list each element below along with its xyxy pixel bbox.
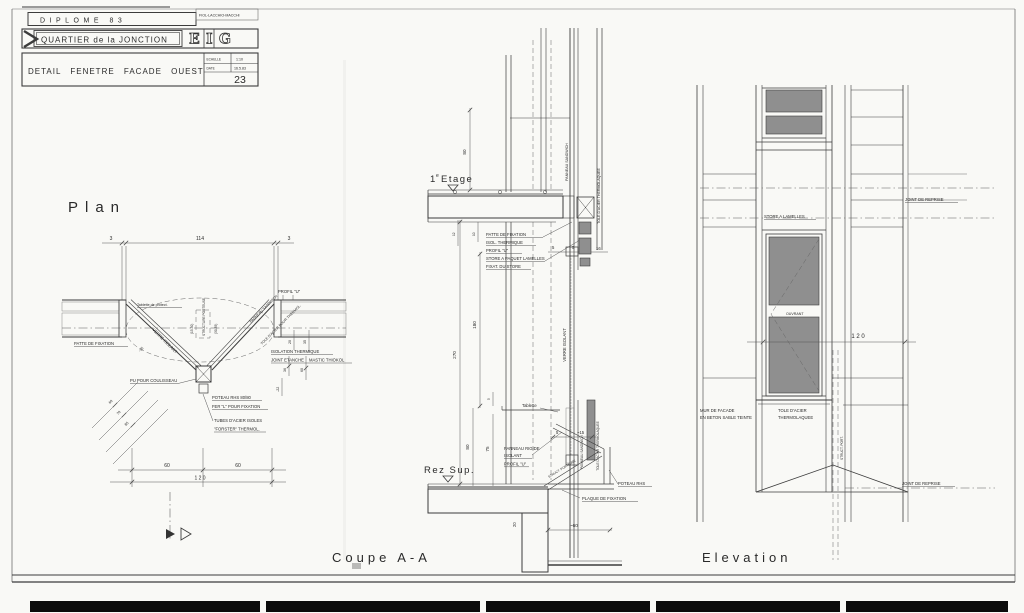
elevation-mur-label-1: MUR DE FACADE: [700, 408, 735, 413]
plan-dim-22: -22: [276, 387, 280, 392]
section-letter-icon: [181, 528, 191, 540]
drawing-sheet: DIPLOME 83 FIOL-LACCHIO-MACCHI QUARTIER …: [0, 0, 1024, 613]
coupe-structure-lines: [506, 28, 602, 558]
plan-poteau-label: POTEAU RHS 80/80: [212, 395, 252, 400]
logo-letter-g: G: [219, 32, 231, 48]
scan-fold-mark: [343, 60, 346, 560]
coupe-tablette-label: Tablette: [522, 403, 537, 408]
coupe-panneau-sandwich-top-label: PANNEAU SANDWICH: [565, 143, 569, 181]
plan-title: Plan: [68, 199, 126, 216]
plan-drawing: Plan 3 114 3: [62, 199, 352, 540]
elevation-title: Elevation: [702, 550, 791, 565]
date-label: DATE: [207, 67, 215, 71]
level1-name: Etage: [441, 174, 473, 185]
scan-speck: [352, 563, 361, 569]
date-value: 16.5.83: [234, 67, 246, 71]
plan-profil-u-label: PROFIL "U": [278, 289, 301, 294]
coupe-tole-top-label: TOLE D'ACIER THERMOLAQUEE: [597, 168, 601, 224]
elevation-ouvrant-label: OUVRANT: [786, 312, 804, 316]
plan-fer-l-label: FER "L" POUR FIXATION: [212, 404, 260, 409]
coupe-store-cassette: [577, 197, 594, 266]
coupe-dim-75: 75: [485, 446, 490, 452]
coupe-dim-5c: 5: [487, 398, 491, 400]
coupe-isol-label: ISOL. THERMIQUE: [486, 240, 523, 245]
elevation-top-window: [756, 88, 832, 150]
sheet-border: [12, 7, 1015, 582]
plan-bottom-dims: 60 60 1 2 0: [110, 448, 286, 487]
level-marker-etage1: 1 e Etage: [430, 173, 473, 191]
coupe-store-paquet-label: STORE A PAQUET LAMELLES: [486, 256, 545, 261]
scale-label: ECHELLE: [207, 58, 222, 62]
coupe-poteau-label: POTEAU RHS: [618, 481, 645, 486]
plan-dim-35neg: -35: [138, 346, 145, 353]
elevation-wall-lines: [697, 85, 967, 522]
plan-dim-struct-a: (15-30): [190, 324, 194, 334]
elevation-joint-reprise-bottom-label: JOINT DE REPRISE: [902, 481, 941, 486]
coupe-dim-12: 12: [452, 232, 456, 236]
coupe-fixat-store-label: FIXAT. DU STORE: [486, 264, 521, 269]
coupe-verre-isolant-label: VERRE ISOLANT: [562, 328, 567, 362]
plan-diag-85: 85: [124, 421, 130, 427]
coupe-slab-rez: Rez Sup. 20 ~60: [424, 465, 622, 572]
elevation-joint-lines: [700, 188, 995, 488]
plan-dim-20: 20: [288, 340, 292, 344]
elevation-mur-label-2: EN BETON SABLE TEINTE: [700, 415, 752, 420]
coupe-dim-20: 20: [512, 522, 517, 527]
level-triangle-icon: [443, 476, 453, 482]
plan-joint-etanche-label: JOINT ETANCHE: [271, 358, 304, 363]
plan-dim-60b: 60: [235, 463, 241, 469]
plan-wall-left: [62, 300, 126, 337]
plan-tablette-label: Tablette de protect.: [137, 303, 168, 307]
coupe-plaque-label: PLAQUE DE FIXATION: [582, 496, 626, 501]
elevation-store-lamelles-label: STORE A LAMELLES: [764, 214, 805, 219]
coupe-drawing: 1 e Etage 80 12 10 270 180 5 80 75 PATTE…: [424, 28, 652, 572]
plan-patte-label: PATTE DE FIXATION: [74, 341, 114, 346]
coupe-panneau-sandwich-bot-label: PANNEAU SANDWICH: [580, 435, 584, 469]
coupe-dim-5a: 5: [552, 245, 555, 250]
level1-sup: e: [436, 173, 439, 179]
coupe-dim-16: 16: [596, 246, 601, 251]
coupe-dim-5b: 5: [572, 245, 575, 250]
project-name: QUARTIER de la JONCTION: [41, 36, 168, 45]
coupe-panneau-rigide-label: PANNEAU RIGIDE: [504, 446, 540, 451]
coupe-dim-80-top: 80: [462, 149, 467, 155]
coupe-tole-bot-label: TOLE D'ACIER THERMOLAQUEE: [596, 421, 600, 470]
coupe-profil-u2-label: PROFIL "U": [504, 462, 527, 467]
coupe-isolant-label: ISOLANT: [504, 453, 522, 458]
plan-mastic-label: MASTIC THIOKOL: [309, 358, 345, 363]
coupe-dim-270: 270: [452, 351, 457, 359]
logo-letter-i: I: [206, 32, 213, 48]
diplome-label: DIPLOME 83: [40, 18, 126, 25]
coupe-struct-porteuse-label: STRUCT. PORTEUSE: [547, 459, 576, 479]
coupe-dim-180: 180: [472, 321, 477, 329]
coupe-sill-assembly: PANNEAU SANDWICH TOLE D'ACIER THERMOLAQU…: [544, 400, 614, 490]
plan-dim-35: 35: [303, 340, 307, 344]
sheet-number: 23: [234, 74, 246, 86]
plan-forster-label: "FORSTER" THERMOL.: [214, 427, 260, 432]
logo-letter-e: E: [189, 32, 200, 48]
elevation-joint-reprise-top-label: JOINT DE REPRISE: [905, 197, 944, 202]
coupe-slab-etage1: [428, 190, 574, 222]
coupe-dim-80-bot: 80: [465, 444, 470, 450]
elevation-struct-port-label: STRUCT. PORT.: [840, 436, 844, 460]
elevation-dim-120-value: 1 2 0: [851, 334, 865, 340]
plan-dim-120: 1 2 0: [194, 476, 205, 482]
scale-value: 1:10: [236, 58, 243, 62]
coupe-title: Coupe A-A: [332, 550, 431, 565]
plan-dim-3-left: 3: [110, 236, 113, 242]
plan-dim-36: 36: [283, 368, 287, 372]
elevation-drawing: JOINT DE REPRISE JOINT DE REPRISE STORE …: [697, 85, 995, 560]
architectural-drawing: DIPLOME 83 FIOL-LACCHIO-MACCHI QUARTIER …: [0, 0, 1024, 613]
title-block: DIPLOME 83 FIOL-LACCHIO-MACCHI QUARTIER …: [22, 9, 258, 86]
plan-dim-60: 60: [300, 368, 304, 372]
authors-label: FIOL-LACCHIO-MACCHI: [199, 14, 240, 18]
section-arrow-icon: [166, 529, 175, 539]
coupe-dim-15: ~15: [577, 430, 585, 435]
plan-dim-struct-b: (30-35): [214, 324, 218, 334]
plan-dim-114: 114: [196, 236, 204, 242]
coupe-patte-label: PATTE DE FIXATION: [486, 232, 526, 237]
elevation-tole-label-2: THERMOLAQUEE: [778, 415, 813, 420]
section-marker-a: [166, 492, 191, 540]
plan-center-post: [196, 366, 211, 393]
chevron-icon: [24, 31, 37, 47]
elevation-main-window: OUVRANT: [756, 234, 832, 404]
coupe-dim-60: ~60: [570, 523, 578, 528]
coupe-dim-10: 10: [472, 232, 476, 236]
plan-isolation-label: ISOLATION THERMIQUE: [271, 349, 319, 354]
plan-diag-60: 60: [108, 399, 114, 405]
plan-diagonal-dims: 60 70 85: [92, 382, 168, 464]
plan-dim-60a: 60: [164, 463, 170, 469]
elevation-tole-label-1: TOLE D'ACIER: [778, 408, 807, 413]
plan-diag-70: 70: [116, 410, 122, 416]
level0-name: Rez Sup.: [424, 465, 475, 476]
coupe-profil-u-label: PROFIL "U": [486, 248, 509, 253]
scan-edge-strip: [30, 601, 1008, 612]
plan-pu-label: PU POUR COULISSEAU: [130, 378, 177, 383]
plan-structure-porteuse-label: STRUCTURE PORTEUSE: [202, 298, 206, 336]
drawing-title: DETAIL FENETRE FACADE OUEST: [28, 67, 204, 76]
plan-tubes-label: TUBES D'ACIER ISOLES: [214, 418, 262, 423]
plan-dim-3-right: 3: [288, 236, 291, 242]
elevation-store-panel: STORE A LAMELLES: [762, 214, 826, 230]
